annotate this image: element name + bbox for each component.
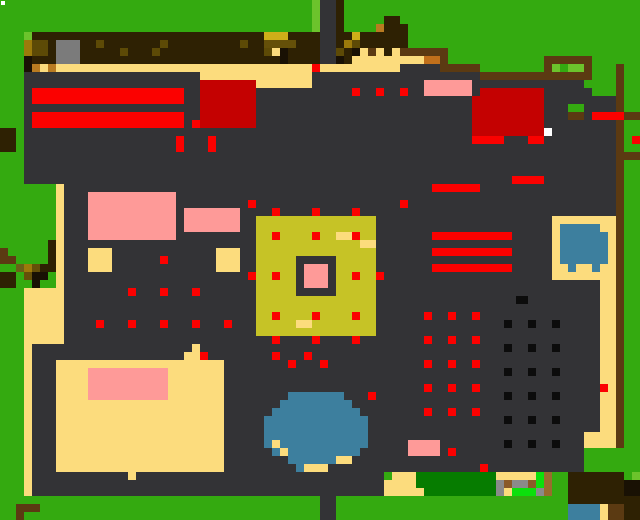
red-banners-tile (432, 232, 512, 240)
shop-stones-tile (536, 488, 544, 496)
sand-paths-tile (24, 288, 64, 344)
bottom-sand-blob-tile (496, 472, 536, 480)
shadow-blacks-tile (40, 272, 48, 280)
sand-paths-tile (360, 48, 368, 56)
mid-gold-trim-tile (344, 40, 352, 48)
log-fences-tile (440, 56, 448, 64)
red-item-dots-tile (312, 312, 320, 320)
pond-tile (288, 456, 336, 464)
red-banners-tile (528, 136, 544, 144)
red-banners-tile (472, 136, 480, 144)
pink-buildings-tile (424, 80, 472, 96)
red-item-dots-tile (248, 272, 256, 280)
black-dots-tile (504, 416, 512, 424)
black-dots-tile (516, 296, 528, 304)
shop-wood-tile (544, 472, 552, 496)
red-item-dots-tile (272, 352, 280, 360)
grass-squares-tile (624, 160, 640, 176)
amber-accents-tile (376, 24, 384, 32)
log-fences-tile (544, 56, 592, 64)
blue-roof-house-tile (592, 264, 600, 272)
shadow-blacks-tile (624, 480, 640, 496)
sand-paths-tile (584, 432, 600, 448)
black-dots-tile (552, 368, 560, 376)
red-item-dots-tile (352, 88, 360, 96)
bottom-sand-blob-tile (384, 488, 424, 496)
red-banners-tile (480, 136, 504, 144)
sand-paths-tile (192, 344, 200, 360)
asphalt-roads-tile (320, 0, 336, 72)
red-item-dots-tile (160, 256, 168, 264)
black-dots-tile (528, 344, 536, 352)
dark-gold-trim-tile (264, 40, 296, 48)
dark-roofs-tile (40, 264, 56, 272)
olive-green-patch-tile (16, 264, 24, 272)
olive-roof-dots-tile (240, 40, 248, 48)
red-banners-tile (176, 136, 184, 152)
log-fences-tile (0, 248, 8, 264)
black-dots-tile (504, 368, 512, 376)
olive-roof-dots-tile (264, 48, 272, 56)
black-dots-tile (528, 392, 536, 400)
sand-paths-tile (184, 352, 192, 360)
pink-buildings-tile (88, 368, 168, 400)
sand-paths-tile (272, 48, 280, 56)
red-item-dots-tile (272, 232, 280, 240)
black-dots-tile (504, 440, 512, 448)
pond-sand-edges-tile (304, 464, 328, 472)
red-item-dots-tile (424, 312, 432, 320)
pond-sand-edges-tile (272, 440, 280, 448)
asphalt-roads-tile (480, 346, 600, 432)
log-fences-tile (440, 64, 480, 72)
bottom-sand-blob-tile (504, 488, 512, 496)
shadow-blacks-tile (32, 280, 40, 288)
red-item-dots-tile (480, 464, 488, 472)
shadow-blacks-tile (32, 272, 40, 280)
log-fences-tile (16, 504, 40, 512)
red-item-dots-tile (272, 312, 280, 320)
lime-bushes-tile (536, 472, 544, 480)
black-dots-tile (528, 416, 536, 424)
plaza-sand-tiles-tile (360, 240, 376, 248)
sand-paths-tile (600, 280, 616, 448)
black-dots-tile (528, 440, 536, 448)
shop-wood-dark-tile (504, 480, 512, 488)
red-item-dots-tile (96, 320, 104, 328)
sand-paths-tile (88, 248, 112, 272)
pond-tile (264, 416, 368, 440)
log-fences-tile (8, 256, 16, 264)
red-item-dots-tile (304, 352, 312, 360)
red-item-dots-tile (352, 312, 360, 320)
bottom-sand-blob-tile (392, 472, 416, 480)
asphalt-roads-tile (480, 80, 584, 88)
pond-tile (280, 400, 352, 408)
asphalt-roads-tile (552, 280, 600, 346)
dark-gold-trim-tile (24, 272, 32, 280)
red-item-dots-tile (288, 360, 296, 368)
pink-buildings-tile (88, 192, 176, 240)
light-grass-patches-tile (632, 472, 640, 480)
red-item-dots-tile (632, 136, 640, 144)
chimney-tile (56, 40, 80, 64)
asphalt-roads-tile (32, 344, 56, 472)
dark-roofs-tile (0, 128, 16, 152)
red-item-dots-tile (424, 360, 432, 368)
game-world-map[interactable] (0, 0, 640, 520)
sand-paths-tile (128, 472, 136, 480)
red-item-dots-tile (272, 336, 280, 344)
plaza-center-shrine-tile (304, 264, 328, 288)
gold-trim-tile (264, 32, 288, 40)
sand-paths-tile (392, 48, 400, 56)
red-banners-tile (512, 176, 544, 184)
dark-red-buildings-tile (480, 88, 544, 136)
gate-light-grass-tile (552, 64, 560, 72)
pink-buildings-tile (408, 440, 440, 456)
olive-roof-dots-tile (352, 40, 360, 48)
dark-red-buildings-tile (200, 80, 256, 128)
olive-roof-dots-tile (160, 40, 168, 48)
red-item-dots-tile (472, 384, 480, 392)
log-fences-tile (480, 72, 592, 80)
black-dots-tile (552, 320, 560, 328)
red-item-dots-tile (448, 448, 456, 456)
log-fences-tile (544, 64, 552, 72)
olive-roof-dots-tile (96, 40, 104, 48)
sand-paths-tile (320, 64, 400, 72)
red-item-dots-tile (376, 272, 384, 280)
red-item-dots-tile (160, 320, 168, 328)
log-fences-tile (616, 64, 624, 448)
red-item-dots-tile (472, 336, 480, 344)
shadow-blacks-tile (24, 64, 32, 72)
red-item-dots-tile (224, 320, 232, 328)
olive-roof-dots-tile (120, 48, 128, 56)
light-grass-patches-tile (312, 0, 320, 32)
red-item-dots-tile (352, 336, 360, 344)
bottom-sand-blob-tile (384, 480, 416, 488)
red-item-dots-tile (600, 384, 608, 392)
sand-paths-tile (376, 48, 384, 56)
red-item-dots-tile (352, 208, 360, 216)
olive-roof-dots-tile (32, 40, 48, 56)
olive-roof-dots-tile (152, 48, 160, 56)
sand-paths-tile (400, 56, 424, 64)
red-banners-tile (32, 112, 184, 128)
shop-stones-tile (496, 488, 504, 496)
shop-stones-tile (496, 480, 504, 488)
grass-squares-tile (568, 104, 584, 112)
black-dots-tile (552, 392, 560, 400)
asphalt-roads-tile (320, 496, 336, 520)
red-item-dots-tile (192, 320, 200, 328)
red-item-dots-tile (424, 336, 432, 344)
red-item-dots-tile (312, 208, 320, 216)
red-item-dots-tile (424, 408, 432, 416)
red-item-dots-tile (192, 288, 200, 296)
red-item-dots-tile (160, 288, 168, 296)
red-item-dots-tile (448, 384, 456, 392)
shop-stones-tile (512, 480, 528, 488)
white-accents-tile (1, 1, 5, 5)
red-item-dots-tile (448, 360, 456, 368)
log-fences-tile (584, 64, 592, 72)
red-item-dots-tile (376, 88, 384, 96)
red-banners-tile (432, 264, 512, 272)
dark-roofs-tile (568, 472, 624, 504)
shop-wood-dark-tile (528, 480, 536, 488)
black-dots-tile (504, 392, 512, 400)
amber-accents-tile (32, 64, 40, 72)
black-dots-tile (552, 344, 560, 352)
black-dots-tile (552, 440, 560, 448)
red-item-dots-tile (472, 360, 480, 368)
red-banners-tile (32, 88, 184, 104)
red-item-dots-tile (424, 384, 432, 392)
black-dots-tile (504, 344, 512, 352)
red-item-dots-tile (312, 336, 320, 344)
blue-roof-house-tile (568, 264, 576, 272)
red-item-dots-tile (312, 64, 320, 72)
sand-paths-tile (56, 184, 64, 288)
plaza-sand-tiles-tile (336, 232, 352, 240)
log-fences-tile (16, 512, 24, 520)
red-banners-tile (432, 248, 512, 256)
asphalt-roads-tile (400, 64, 440, 72)
red-banners-tile (592, 112, 624, 120)
sand-paths-tile (216, 248, 240, 272)
gold-trim-tile (352, 32, 360, 40)
log-fences-tile (400, 48, 448, 56)
pink-buildings-tile (184, 208, 240, 232)
dark-roofs-tile (624, 496, 640, 520)
pond-tile (288, 392, 344, 400)
asphalt-roads-tile (480, 432, 584, 472)
blue-roof-house-tile (600, 232, 608, 264)
red-item-dots-tile (472, 312, 480, 320)
dark-roofs-tile (48, 240, 56, 264)
sand-paths-tile (24, 344, 32, 496)
asphalt-roads-tile (320, 472, 384, 496)
red-item-dots-tile (352, 272, 360, 280)
black-dots-tile (528, 320, 536, 328)
red-item-dots-tile (400, 200, 408, 208)
log-fences-tile (624, 112, 640, 120)
red-item-dots-tile (200, 352, 208, 360)
log-fences-tile (568, 112, 584, 120)
light-grass-patches-tile (24, 32, 32, 40)
dark-roofs-tile (344, 48, 352, 64)
pond-tile (272, 408, 360, 416)
red-item-dots-tile (448, 408, 456, 416)
grass-squares-tile (560, 64, 568, 72)
mid-gold-trim-tile (24, 264, 32, 272)
shadow-blacks-tile (352, 48, 360, 56)
red-item-dots-tile (448, 336, 456, 344)
dark-roofs-tile (0, 272, 16, 288)
blue-roof-house-tile (560, 224, 600, 264)
plaza-sand-tiles-tile (296, 320, 312, 328)
black-dots-tile (504, 320, 512, 328)
shadow-blacks-tile (336, 56, 344, 64)
red-item-dots-tile (448, 312, 456, 320)
red-banners-tile (192, 120, 200, 128)
lime-bushes-tile (512, 488, 536, 496)
red-item-dots-tile (320, 360, 328, 368)
lime-bushes-tile (536, 480, 544, 488)
orange-accents-tile (424, 56, 440, 64)
red-item-dots-tile (368, 392, 376, 400)
olive-roof-dots-tile (336, 48, 344, 56)
white-accents-tile (544, 128, 552, 136)
mid-gold-trim-tile (24, 48, 32, 56)
red-item-dots-tile (400, 88, 408, 96)
red-item-dots-tile (248, 200, 256, 208)
amber-accents-tile (48, 64, 56, 72)
blue-roof-house-tile (568, 504, 600, 520)
red-item-dots-tile (352, 232, 360, 240)
dark-red-buildings-tile (472, 96, 480, 136)
red-banners-tile (432, 184, 480, 192)
gate-light-grass-tile (568, 64, 584, 72)
pond-tile (296, 464, 304, 472)
dark-green-yard-tile (416, 472, 496, 496)
mid-gold-trim-tile (24, 40, 32, 48)
red-item-dots-tile (128, 288, 136, 296)
bottom-sand-blob-tile (600, 504, 608, 520)
red-banners-tile (208, 136, 216, 152)
red-item-dots-tile (128, 320, 136, 328)
asphalt-roads-tile (592, 96, 616, 192)
black-dots-tile (552, 416, 560, 424)
shadow-blacks-tile (280, 48, 288, 64)
black-dots-tile (528, 368, 536, 376)
red-item-dots-tile (272, 272, 280, 280)
red-item-dots-tile (272, 208, 280, 216)
dark-gold-trim-tile (32, 264, 40, 272)
log-fences-tile (608, 504, 624, 520)
red-item-dots-tile (312, 232, 320, 240)
pond-sand-edges-tile (336, 456, 352, 464)
red-item-dots-tile (472, 408, 480, 416)
asphalt-roads-tile (480, 192, 616, 216)
shadow-blacks-tile (24, 56, 32, 64)
pond-sand-edges-tile (280, 448, 288, 456)
asphalt-roads-tile (56, 344, 64, 360)
